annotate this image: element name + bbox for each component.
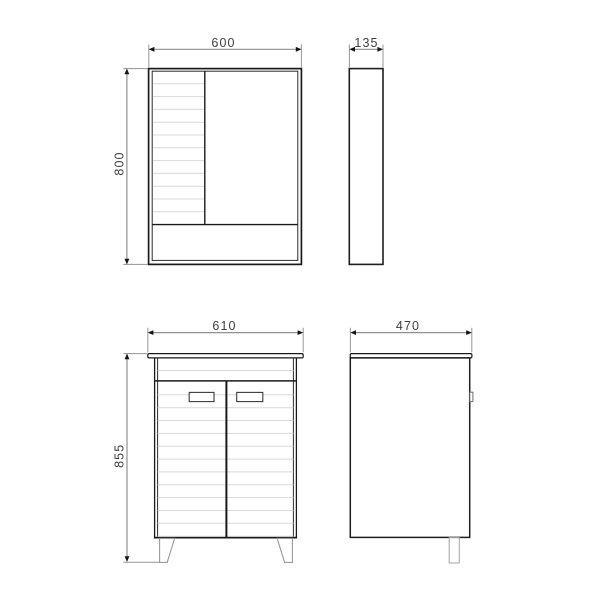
svg-text:800: 800 (113, 151, 127, 175)
svg-text:135: 135 (354, 36, 378, 50)
svg-text:600: 600 (211, 36, 235, 50)
svg-text:470: 470 (396, 319, 420, 333)
svg-text:610: 610 (212, 319, 236, 333)
svg-text:855: 855 (113, 444, 127, 468)
